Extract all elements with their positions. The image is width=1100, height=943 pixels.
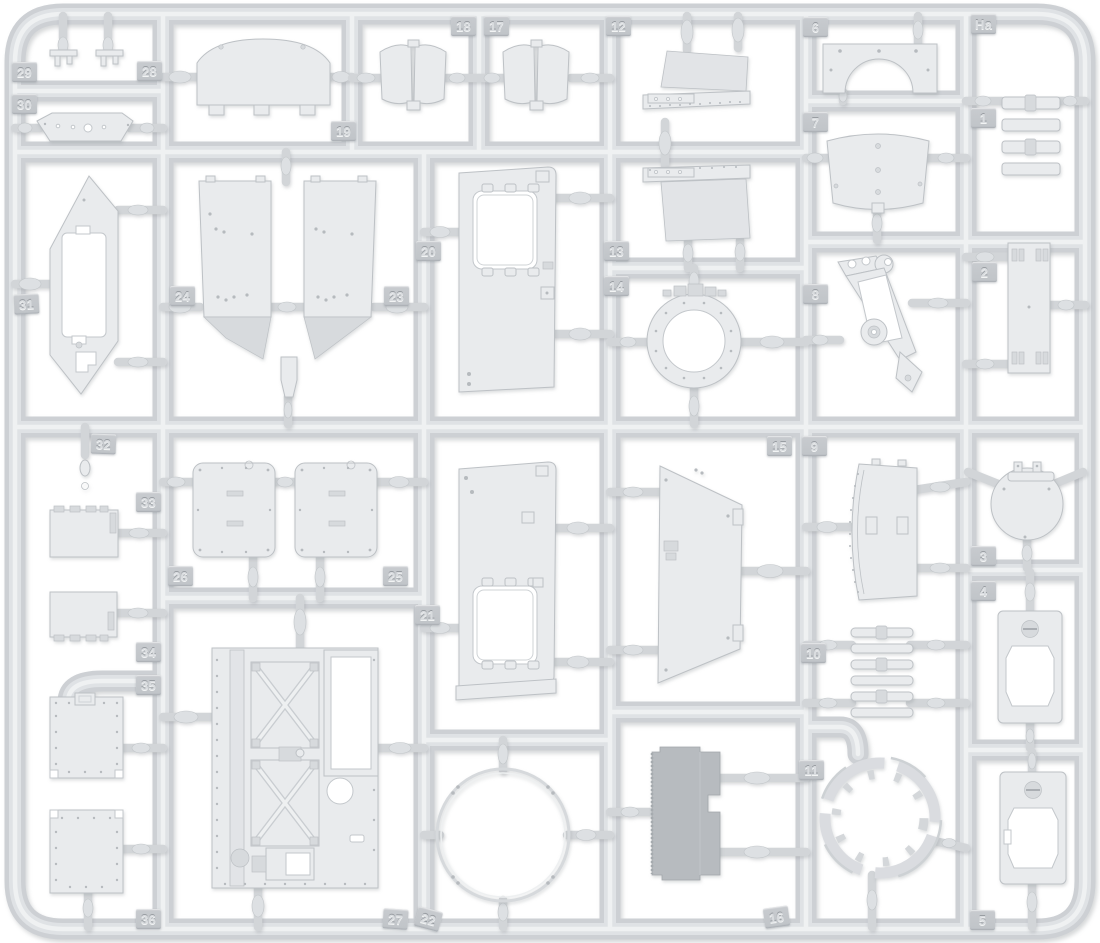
part-number-tag: 23 xyxy=(384,286,409,306)
part-number-tag: 2 xyxy=(972,262,997,282)
part-number-tag: 7 xyxy=(803,112,828,132)
part-number-tag: 19 xyxy=(331,121,356,141)
part-number-tag: 26 xyxy=(168,566,193,586)
part-number-label: 31 xyxy=(19,297,35,311)
part-number-label: 34 xyxy=(141,646,156,659)
part-number-label: 19 xyxy=(336,125,351,138)
part-number-label: 1 xyxy=(980,112,988,125)
part-number-label: 9 xyxy=(811,440,819,453)
part-number-label: 22 xyxy=(420,911,438,927)
part-number-label: 26 xyxy=(173,570,188,583)
part-number-tag: 27 xyxy=(382,908,408,930)
part-number-tag: 34 xyxy=(136,642,161,662)
part-number-label: 5 xyxy=(979,914,987,927)
part-number-tag: 25 xyxy=(383,566,408,586)
part-number-tag: 9 xyxy=(802,436,827,456)
part-number-tag: 28 xyxy=(137,61,162,81)
part-number-label: 13 xyxy=(609,245,624,258)
part-number-tag: Ha xyxy=(971,14,996,34)
part-number-tag: 33 xyxy=(136,492,161,512)
part-number-tag: 22 xyxy=(414,906,443,932)
part-number-tag: 11 xyxy=(799,760,824,780)
part-number-label: 6 xyxy=(812,21,820,34)
part-number-label: 33 xyxy=(141,496,156,509)
part-number-tag: 1 xyxy=(971,108,996,128)
part-number-label: 11 xyxy=(804,764,818,777)
part-number-tag: 18 xyxy=(451,16,476,36)
part-number-tag: 3 xyxy=(971,546,996,566)
part-number-tag: 24 xyxy=(170,286,195,306)
part-number-label: 3 xyxy=(980,550,988,563)
part-number-label: 8 xyxy=(812,288,820,301)
part-number-tag: 14 xyxy=(604,276,629,296)
part-number-tag: 29 xyxy=(12,62,37,82)
part-number-label: 30 xyxy=(17,98,32,111)
part-number-label: 21 xyxy=(420,609,435,622)
part-number-label: 2 xyxy=(981,266,989,279)
part-number-label: 24 xyxy=(175,290,190,303)
part-number-label: 27 xyxy=(388,912,404,926)
part-number-label: 32 xyxy=(96,437,112,451)
sprue-photo: 29 28 30 19 18 17 12 6 Ha 7 1 31 24 23 2… xyxy=(0,0,1100,943)
part-number-tag: 4 xyxy=(971,581,996,601)
part-number-tag: 12 xyxy=(606,16,631,36)
part-number-label: 16 xyxy=(768,910,785,925)
part-number-tag: 16 xyxy=(763,905,791,928)
part-number-tag: 6 xyxy=(803,17,828,37)
part-number-label: 20 xyxy=(421,245,436,258)
part-number-label: 14 xyxy=(609,280,624,293)
part-number-label: 10 xyxy=(806,647,821,660)
part-number-tag: 20 xyxy=(416,241,441,261)
part-number-label: 25 xyxy=(388,570,403,583)
part-number-label: 15 xyxy=(772,440,787,453)
part-number-tag: 30 xyxy=(12,94,37,114)
part-number-tag: 32 xyxy=(91,434,117,455)
part-number-tag: 21 xyxy=(415,605,440,625)
part-number-label: 18 xyxy=(456,20,471,33)
part-number-tag: 17 xyxy=(484,16,509,36)
part-number-tag: 13 xyxy=(604,241,629,261)
part-number-label: 7 xyxy=(812,116,820,129)
part-number-tag: 5 xyxy=(970,910,995,930)
part-number-label: 17 xyxy=(489,20,504,33)
part-number-label: Ha xyxy=(975,18,992,31)
part-number-tag: 31 xyxy=(13,293,39,314)
part-number-label: 4 xyxy=(980,585,988,598)
part-number-tag: 35 xyxy=(136,675,161,695)
part-number-label: 35 xyxy=(141,679,156,692)
part-number-label: 36 xyxy=(141,913,156,926)
part-number-tag: 8 xyxy=(803,284,828,304)
part-number-label: 12 xyxy=(611,20,626,33)
part-number-label: 28 xyxy=(142,65,157,78)
part-number-label: 23 xyxy=(389,290,404,303)
part-number-tag: 15 xyxy=(767,436,792,456)
part-number-tag: 36 xyxy=(136,909,161,929)
part-number-tag: 10 xyxy=(801,643,826,663)
part-number-label: 29 xyxy=(17,66,32,79)
part-number-tags: 29 28 30 19 18 17 12 6 Ha 7 1 31 24 23 2… xyxy=(0,0,1100,943)
